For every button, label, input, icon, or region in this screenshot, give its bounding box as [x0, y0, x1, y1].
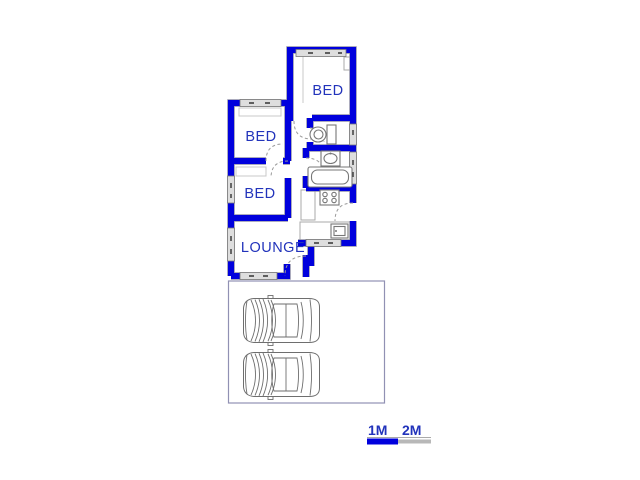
fixtures [308, 125, 352, 238]
sink-icon [331, 224, 348, 238]
window [228, 176, 235, 203]
bathtub-icon [308, 167, 352, 187]
door-arc [335, 203, 353, 221]
room-label-bed-1: BED [312, 83, 343, 99]
car-icon [244, 350, 320, 400]
window [350, 124, 357, 145]
door-arc [266, 144, 283, 161]
scale-label-2m: 2M [402, 422, 421, 438]
floorplan-canvas: BED BED BED LOUNGE 1M 2M [0, 0, 640, 480]
toilet-icon [310, 125, 336, 144]
basin-icon [321, 151, 340, 166]
scale-segment-1m [367, 439, 398, 445]
scale-label-1m: 1M [368, 422, 387, 438]
pelmet-line [239, 108, 281, 116]
car-icon [244, 296, 320, 346]
room-label-bed-3: BED [244, 186, 275, 202]
pelmet-line [236, 167, 266, 176]
stove-icon [320, 190, 339, 205]
kitchen-counter-icon [301, 190, 315, 220]
floorplan-page: BED BED BED LOUNGE 1M 2M [0, 0, 640, 480]
scale-bar: 1M 2M [367, 422, 431, 445]
window [240, 273, 277, 280]
room-label-bed-2: BED [245, 129, 276, 145]
room-label-lounge: LOUNGE [241, 240, 305, 256]
window [240, 100, 281, 107]
window [306, 240, 341, 247]
window [296, 50, 346, 57]
window [228, 228, 235, 261]
scale-segment-2m [398, 440, 431, 444]
